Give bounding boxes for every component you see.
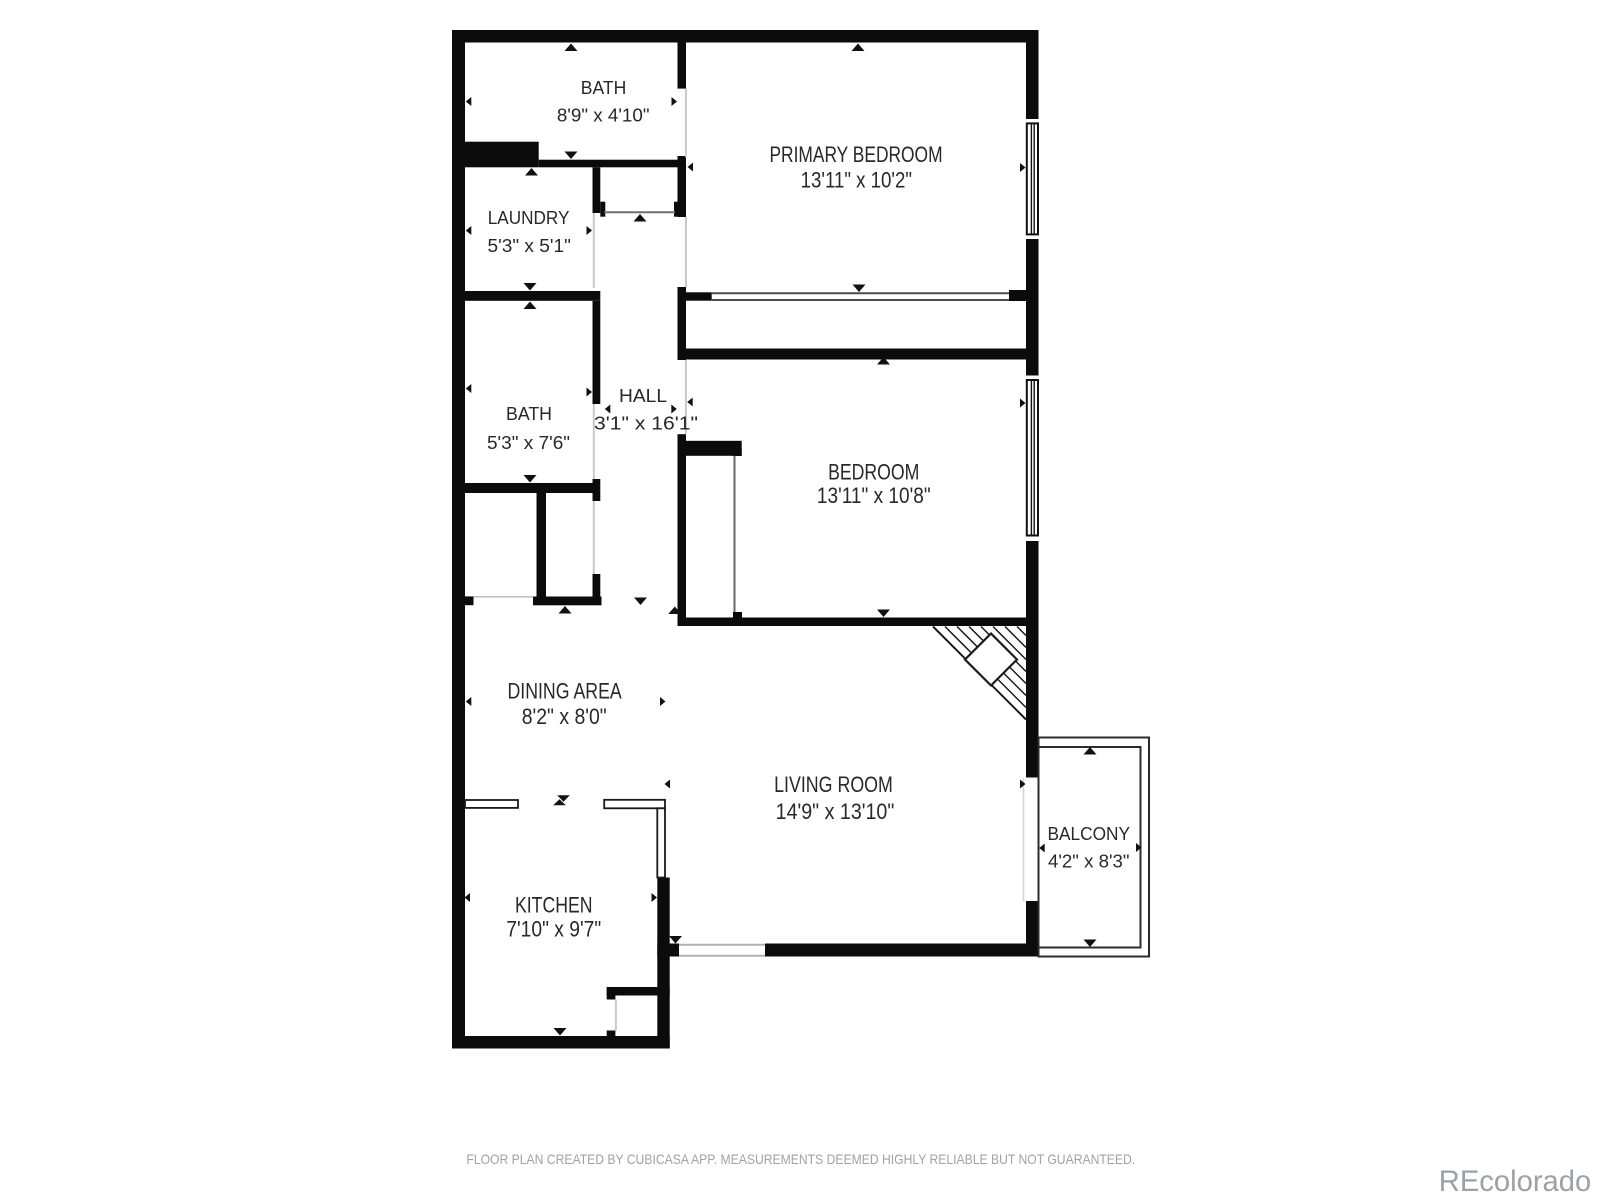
svg-text:KITCHEN: KITCHEN [515,893,593,918]
svg-text:HALL: HALL [619,386,667,406]
svg-text:5'3" x 5'1": 5'3" x 5'1" [488,236,571,256]
svg-text:REcolorado: REcolorado [1439,1165,1592,1198]
svg-text:5'3" x 7'6": 5'3" x 7'6" [487,433,570,453]
svg-text:BATH: BATH [506,404,552,424]
svg-text:PRIMARY BEDROOM: PRIMARY BEDROOM [769,142,942,167]
svg-text:BALCONY: BALCONY [1048,824,1131,844]
svg-text:4'2" x 8'3": 4'2" x 8'3" [1048,852,1130,872]
svg-text:8'9" x 4'10": 8'9" x 4'10" [557,106,650,126]
svg-text:DINING AREA: DINING AREA [508,678,622,703]
svg-text:LIVING ROOM: LIVING ROOM [774,772,893,797]
svg-text:BATH: BATH [581,78,627,98]
svg-text:14'9" x 13'10": 14'9" x 13'10" [776,799,895,824]
svg-text:FLOOR PLAN CREATED BY CUBICASA: FLOOR PLAN CREATED BY CUBICASA APP. MEAS… [466,1152,1135,1167]
svg-text:13'11" x 10'8": 13'11" x 10'8" [817,483,931,508]
svg-text:3'1" x 16'1": 3'1" x 16'1" [594,414,698,434]
svg-text:8'2" x 8'0": 8'2" x 8'0" [522,704,607,729]
svg-text:BEDROOM: BEDROOM [828,459,919,484]
svg-text:7'10" x 9'7": 7'10" x 9'7" [506,916,601,941]
svg-text:LAUNDRY: LAUNDRY [488,208,570,228]
svg-text:13'11" x 10'2": 13'11" x 10'2" [801,168,912,193]
